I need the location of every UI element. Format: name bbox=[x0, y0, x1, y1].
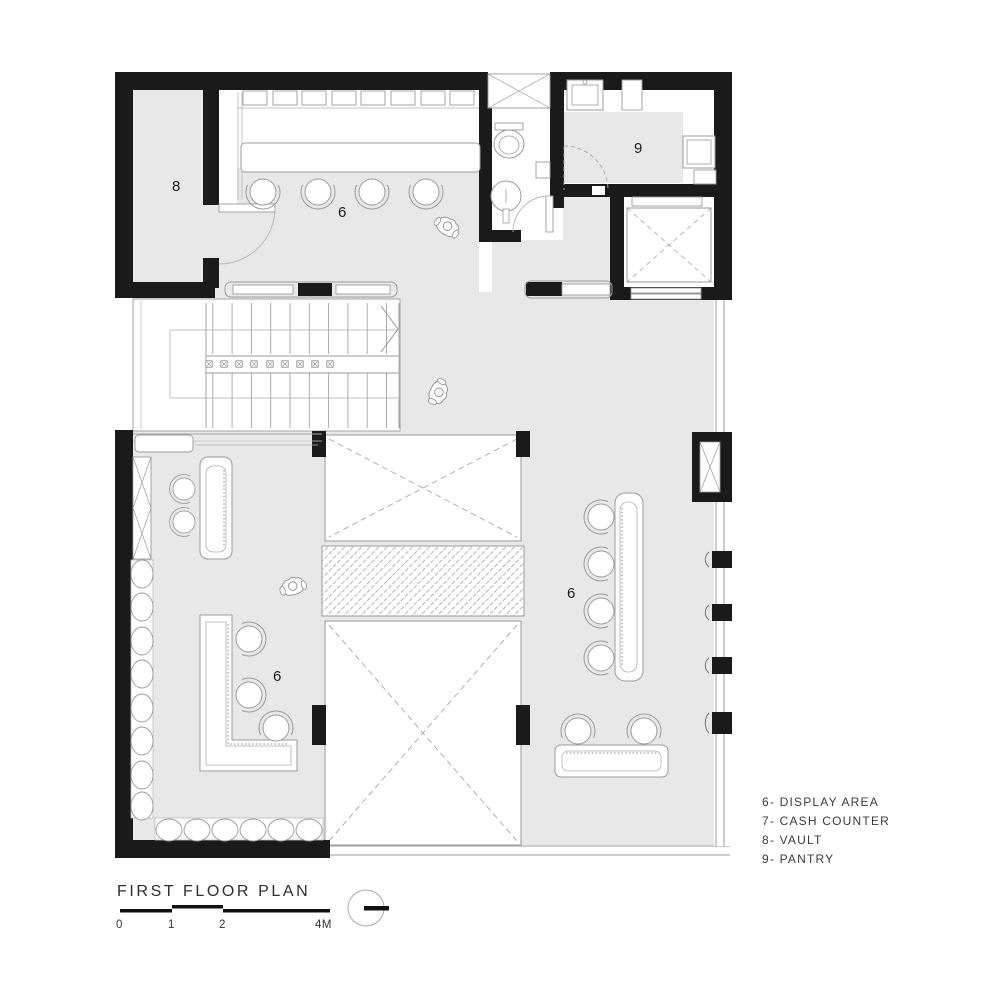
toilet bbox=[494, 123, 524, 158]
wall-seat-column bbox=[131, 560, 153, 820]
scale-label-4m: 4M bbox=[315, 919, 332, 931]
lower-void bbox=[325, 621, 521, 845]
legend-item: 9- PANTRY bbox=[762, 852, 834, 866]
bathroom-shelf bbox=[536, 162, 550, 178]
display-counter-left-upper bbox=[200, 457, 232, 559]
vault-door-leaf bbox=[219, 204, 275, 212]
floor-plan-drawing: 8 6 9 6 6 6- DISPLAY AREA 7- CASH COUNTE… bbox=[0, 0, 1000, 1000]
duct-shaft-top bbox=[488, 74, 550, 108]
scale-label-0: 0 bbox=[116, 919, 123, 931]
legend-item: 8- VAULT bbox=[762, 833, 823, 847]
staircase bbox=[133, 299, 400, 431]
bathroom bbox=[488, 74, 553, 232]
duct-shaft-right bbox=[692, 432, 732, 502]
pantry-counter-item bbox=[622, 80, 642, 110]
floor-plan-sheet: 8 6 9 6 6 6- DISPLAY AREA 7- CASH COUNTE… bbox=[0, 0, 1000, 1000]
legend-item: 6- DISPLAY AREA bbox=[762, 795, 879, 809]
room-label-display-left: 6 bbox=[273, 668, 282, 685]
room-label-pantry: 9 bbox=[634, 140, 643, 157]
upper-void bbox=[325, 435, 521, 541]
scale-bar: 0 1 2 4M bbox=[116, 905, 332, 931]
scale-label-2: 2 bbox=[219, 919, 226, 931]
stair-balusters bbox=[206, 361, 333, 367]
pantry-sink bbox=[567, 80, 603, 110]
plan-title: FIRST FLOOR PLAN bbox=[117, 883, 310, 900]
room-label-display-right: 6 bbox=[567, 585, 576, 602]
legend: 6- DISPLAY AREA 7- CASH COUNTER 8- VAULT… bbox=[762, 795, 890, 866]
bathroom-door-leaf bbox=[546, 196, 553, 232]
pantry-appliance bbox=[683, 136, 716, 184]
north-indicator bbox=[348, 890, 389, 926]
duct-shaft-left bbox=[133, 457, 151, 559]
display-counter-bottom bbox=[555, 745, 668, 777]
shelf-row bbox=[243, 91, 474, 105]
display-counter-top bbox=[241, 143, 480, 172]
room-label-vault: 8 bbox=[172, 178, 181, 195]
display-counter-right bbox=[615, 493, 643, 681]
scale-label-1: 1 bbox=[168, 919, 175, 931]
legend-item: 7- CASH COUNTER bbox=[762, 814, 890, 828]
skylight-hatch bbox=[322, 546, 524, 616]
elevator bbox=[624, 197, 714, 299]
pantry-wall-notch bbox=[592, 186, 605, 195]
room-label-display-top: 6 bbox=[338, 204, 347, 221]
wall-seat-row bbox=[155, 818, 323, 841]
